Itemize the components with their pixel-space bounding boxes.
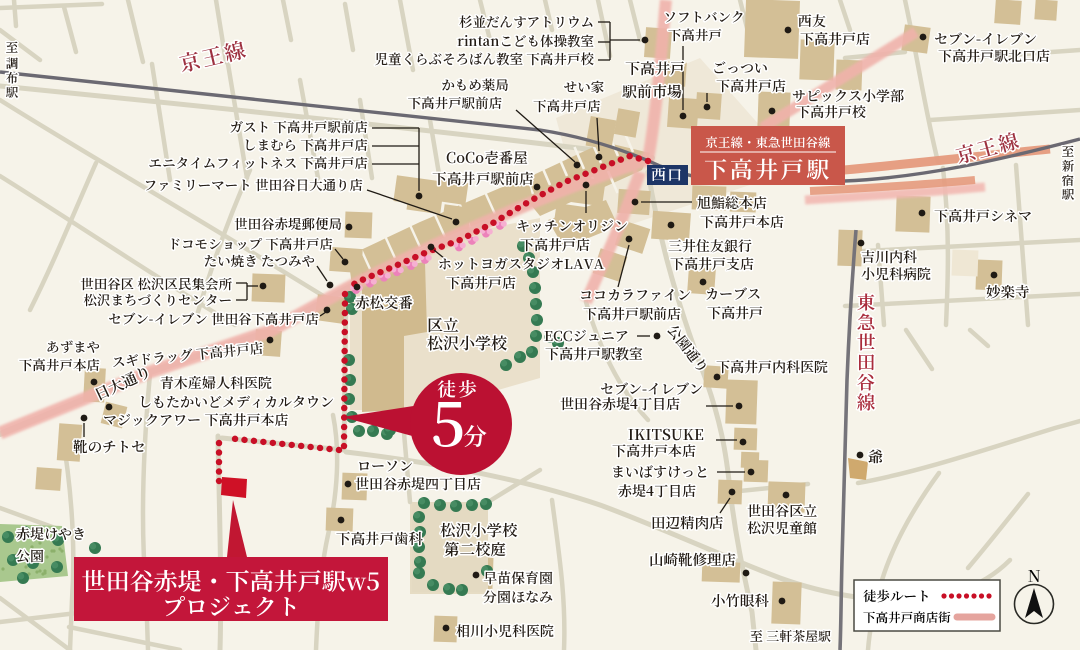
svg-text:駅: 駅 [1062, 185, 1075, 203]
svg-text:下高井戸: 下高井戸 [707, 303, 763, 323]
svg-text:徒歩ルート: 徒歩ルート [863, 585, 931, 605]
svg-text:公園: 公園 [16, 546, 44, 566]
svg-text:下高井戸店: 下高井戸店 [716, 76, 786, 96]
svg-text:しもたかいどメディカルタウン: しもたかいどメディカルタウン [138, 392, 334, 412]
svg-text:セブン-イレブン 世田谷下高井戸店: セブン-イレブン 世田谷下高井戸店 [108, 308, 319, 328]
svg-text:N: N [1028, 564, 1041, 587]
svg-text:赤堤4丁目店: 赤堤4丁目店 [618, 481, 696, 501]
svg-text:下高井戸: 下高井戸 [625, 58, 685, 79]
svg-text:下高井戸駅前店: 下高井戸駅前店 [408, 92, 503, 112]
svg-text:下高井戸内科医院: 下高井戸内科医院 [716, 357, 828, 377]
svg-text:三井住友銀行: 三井住友銀行 [668, 236, 752, 256]
svg-text:山崎靴修理店: 山崎靴修理店 [649, 549, 736, 570]
svg-text:5: 5 [431, 378, 466, 464]
svg-text:下高井戸校: 下高井戸校 [796, 102, 866, 122]
svg-text:マジックアワー 下高井戸本店: マジックアワー 下高井戸本店 [103, 410, 289, 430]
svg-text:せい家: せい家 [564, 76, 605, 96]
svg-text:爺: 爺 [868, 446, 883, 467]
svg-text:早苗保育園: 早苗保育園 [483, 568, 553, 588]
svg-text:下高井戸駅前店: 下高井戸駅前店 [432, 168, 534, 189]
svg-text:まいばすけっと: まいばすけっと [611, 462, 709, 482]
svg-text:下高井戸駅前店: 下高井戸駅前店 [583, 304, 681, 324]
svg-text:キッチンオリジン: キッチンオリジン [516, 216, 628, 236]
svg-text:赤堤けやき: 赤堤けやき [16, 524, 86, 544]
svg-text:しまむら 下高井戸店: しまむら 下高井戸店 [243, 134, 368, 154]
svg-text:下高井戸歯科: 下高井戸歯科 [336, 528, 423, 549]
svg-text:至 三軒茶屋駅: 至 三軒茶屋駅 [750, 626, 831, 645]
svg-text:小竹眼科: 小竹眼科 [711, 590, 769, 611]
svg-text:下高井戸店: 下高井戸店 [520, 235, 590, 255]
svg-text:下高井戸シネマ: 下高井戸シネマ [934, 206, 1032, 226]
svg-text:ごっつい: ごっつい [712, 58, 768, 78]
svg-text:線: 線 [857, 389, 876, 415]
svg-text:第二校庭: 第二校庭 [444, 538, 506, 560]
svg-text:相川小児科医院: 相川小児科医院 [456, 621, 554, 641]
svg-text:下高井戸: 下高井戸 [668, 24, 722, 44]
svg-text:世田谷赤堤4丁目店: 世田谷赤堤4丁目店 [560, 394, 680, 414]
svg-text:松沢小学校: 松沢小学校 [427, 331, 507, 354]
svg-text:かもめ薬局: かもめ薬局 [441, 74, 509, 94]
svg-text:ローソン: ローソン [357, 456, 413, 476]
svg-text:ホットヨガスタジオLAVA: ホットヨガスタジオLAVA [438, 254, 604, 274]
svg-text:分園ほなみ: 分園ほなみ [483, 587, 553, 607]
svg-text:西口: 西口 [651, 164, 683, 185]
svg-text:あずまや: あずまや [46, 336, 100, 356]
svg-text:ファミリーマート 世田谷日大通り店: ファミリーマート 世田谷日大通り店 [144, 174, 363, 194]
svg-text:下高井戸本店: 下高井戸本店 [612, 441, 696, 461]
svg-text:下高井戸店: 下高井戸店 [533, 95, 601, 115]
svg-text:カーブス: カーブス [705, 284, 761, 304]
svg-text:世田谷赤堤四丁目店: 世田谷赤堤四丁目店 [355, 474, 481, 494]
svg-text:田辺精肉店: 田辺精肉店 [651, 512, 724, 533]
svg-text:下高井戸駅教室: 下高井戸駅教室 [545, 344, 643, 364]
svg-text:西友: 西友 [798, 11, 826, 31]
svg-text:プロジェクト: プロジェクト [162, 589, 300, 622]
svg-text:ソフトバンク: ソフトバンク [664, 6, 745, 26]
svg-text:たい焼き たつみや: たい焼き たつみや [204, 250, 315, 270]
svg-text:靴のチトセ: 靴のチトセ [73, 436, 146, 457]
svg-text:下高井戸商店街: 下高井戸商店街 [863, 608, 951, 626]
svg-text:下高井戸支店: 下高井戸支店 [670, 254, 754, 274]
svg-text:ECCジュニア: ECCジュニア [544, 326, 629, 346]
svg-text:エニタイムフィットネス 下高井戸店: エニタイムフィットネス 下高井戸店 [149, 152, 368, 172]
svg-text:下高井戸店: 下高井戸店 [800, 29, 870, 49]
svg-text:世田谷赤堤郵便局: 世田谷赤堤郵便局 [234, 213, 342, 233]
svg-text:ココカラファイン: ココカラファイン [579, 285, 691, 305]
svg-text:小児科病院: 小児科病院 [861, 264, 931, 284]
svg-text:旭鮨総本店: 旭鮨総本店 [697, 193, 767, 213]
svg-text:CoCo壱番屋: CoCo壱番屋 [446, 147, 527, 168]
svg-text:下高井戸店: 下高井戸店 [446, 273, 516, 293]
svg-text:下高井戸本店: 下高井戸本店 [700, 212, 784, 232]
svg-text:京王線・東急世田谷線: 京王線・東急世田谷線 [705, 133, 831, 151]
svg-text:分: 分 [463, 417, 487, 452]
svg-text:松沢児童館: 松沢児童館 [747, 518, 817, 538]
svg-text:児童くらぶそろばん教室 下高井戸校: 児童くらぶそろばん教室 下高井戸校 [375, 48, 595, 68]
svg-text:杉並だんすアトリウム: 杉並だんすアトリウム [459, 11, 594, 31]
svg-text:駅: 駅 [6, 83, 19, 101]
svg-text:駅前市場: 駅前市場 [622, 81, 682, 102]
svg-text:松沢まちづくりセンター: 松沢まちづくりセンター [84, 289, 233, 309]
svg-text:下高井戸駅: 下高井戸駅 [704, 152, 832, 185]
svg-text:下高井戸駅北口店: 下高井戸駅北口店 [938, 46, 1050, 66]
svg-text:妙楽寺: 妙楽寺 [986, 281, 1030, 302]
svg-text:rintanこども体操教室: rintanこども体操教室 [457, 30, 594, 50]
svg-text:赤松交番: 赤松交番 [355, 292, 413, 313]
svg-text:ガスト 下高井戸駅前店: ガスト 下高井戸駅前店 [230, 116, 368, 136]
svg-text:青木産婦人科医院: 青木産婦人科医院 [160, 373, 272, 393]
svg-text:下高井戸本店: 下高井戸本店 [19, 354, 100, 374]
